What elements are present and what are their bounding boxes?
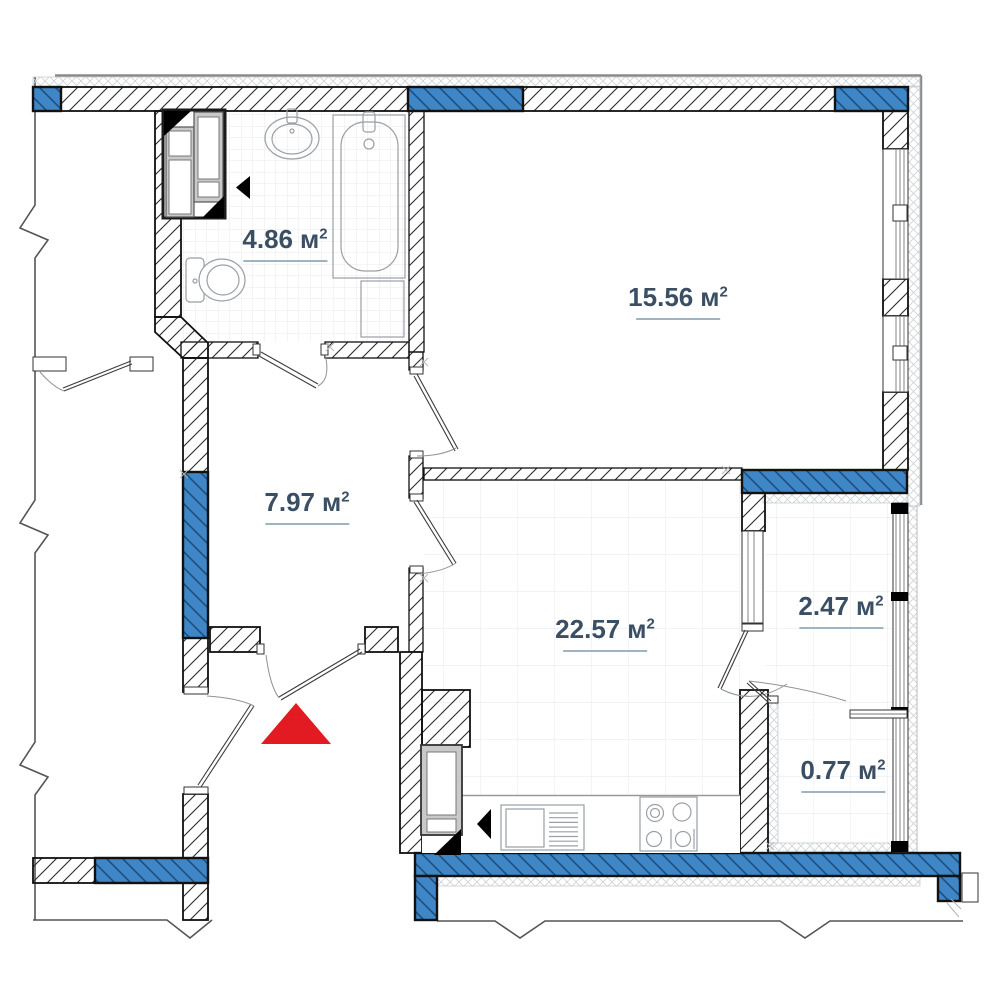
floor-plan: 4.86м2 15.56м2 7.97м2 22.57м2 2.47м2 0.7…: [0, 0, 1000, 1000]
kitchen-sink: [501, 805, 584, 850]
loggia-balcony-windows: [891, 503, 908, 852]
hall-side-door: [184, 687, 254, 794]
area-unit: м: [322, 487, 341, 517]
bathroom-door: [253, 344, 328, 388]
floor-plan-svg: [0, 0, 1000, 1000]
entrance-arrow-icon: [261, 703, 331, 744]
toilet: [186, 258, 245, 302]
area-unit: м: [856, 591, 875, 621]
stove: [640, 797, 697, 851]
entrance-door: [257, 644, 365, 700]
area-unit: м: [858, 755, 877, 785]
label-underline: [636, 318, 720, 320]
balcony-sill-window: [850, 710, 907, 718]
room-label-loggia: 2.47м2: [798, 591, 883, 629]
area-unit: м: [300, 224, 319, 254]
bedroom-door: [410, 367, 458, 458]
room-label-hallway: 7.97м2: [264, 487, 349, 525]
loggia-inner-window: [742, 531, 763, 623]
area-value: 0.77: [800, 755, 851, 785]
label-underline: [563, 650, 647, 652]
area-value: 4.86: [242, 224, 293, 254]
area-unit: м: [700, 282, 719, 312]
area-value: 7.97: [264, 487, 315, 517]
label-underline: [801, 791, 885, 793]
area-unit: м: [627, 614, 646, 644]
label-underline: [265, 523, 349, 525]
bedroom-window-2: [883, 316, 908, 392]
area-value: 22.57: [555, 614, 620, 644]
room-label-bedroom: 15.56м2: [628, 282, 728, 320]
room-label-balcony: 0.77м2: [800, 755, 885, 793]
area-value: 15.56: [628, 282, 693, 312]
bedroom-window-1: [883, 149, 908, 279]
vent-shaft: [163, 110, 225, 218]
room-label-kitchen-living: 22.57м2: [555, 614, 655, 652]
label-underline: [799, 627, 883, 629]
label-underline: [243, 260, 327, 262]
room-label-bathroom: 4.86м2: [242, 224, 327, 262]
area-value: 2.47: [798, 591, 849, 621]
